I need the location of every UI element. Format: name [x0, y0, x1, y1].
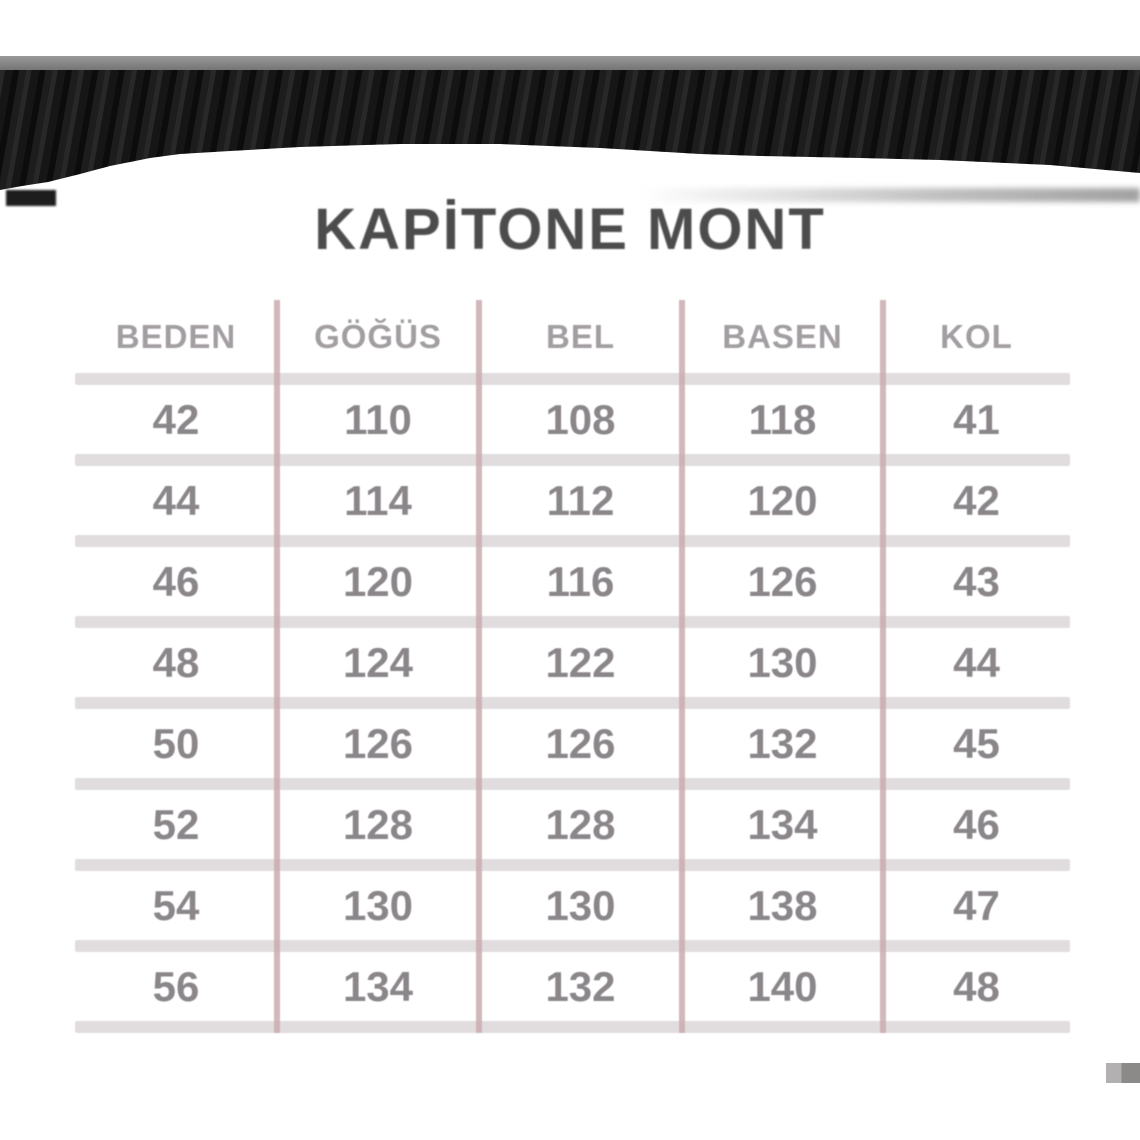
table-row: 44 114 112 120 42 [75, 466, 1070, 535]
row-divider [75, 859, 1070, 871]
cell-gogus: 134 [277, 963, 479, 1011]
cell-kol: 44 [883, 639, 1070, 687]
cell-bel: 116 [479, 558, 682, 606]
row-divider [75, 1021, 1070, 1033]
column-divider [880, 300, 886, 1033]
column-divider [476, 300, 482, 1033]
size-chart-page: KAPİTONE MONT BEDEN GÖĞÜS BEL BASEN KOL … [0, 0, 1140, 1140]
cell-beden: 42 [75, 396, 277, 444]
table-row: 42 110 108 118 41 [75, 385, 1070, 454]
cell-beden: 44 [75, 477, 277, 525]
cell-kol: 47 [883, 882, 1070, 930]
cell-beden: 54 [75, 882, 277, 930]
row-divider [75, 373, 1070, 385]
table-row: 46 120 116 126 43 [75, 547, 1070, 616]
cell-bel: 130 [479, 882, 682, 930]
column-header-kol: KOL [883, 318, 1070, 356]
page-title: KAPİTONE MONT [0, 196, 1140, 263]
banner-top-line [0, 56, 1140, 72]
column-divider [274, 300, 280, 1033]
column-header-beden: BEDEN [75, 318, 277, 356]
table-header-row: BEDEN GÖĞÜS BEL BASEN KOL [75, 300, 1070, 373]
cell-gogus: 124 [277, 639, 479, 687]
size-table: BEDEN GÖĞÜS BEL BASEN KOL 42 110 108 118… [75, 300, 1070, 1033]
table-row: 48 124 122 130 44 [75, 628, 1070, 697]
cell-kol: 45 [883, 720, 1070, 768]
row-divider [75, 697, 1070, 709]
row-divider [75, 778, 1070, 790]
row-divider [75, 535, 1070, 547]
cell-bel: 108 [479, 396, 682, 444]
column-header-basen: BASEN [682, 318, 883, 356]
cell-beden: 52 [75, 801, 277, 849]
cell-basen: 118 [682, 396, 883, 444]
cell-bel: 126 [479, 720, 682, 768]
cell-basen: 140 [682, 963, 883, 1011]
cell-gogus: 128 [277, 801, 479, 849]
cell-bel: 112 [479, 477, 682, 525]
fabric-banner [0, 70, 1140, 195]
cell-kol: 42 [883, 477, 1070, 525]
cell-basen: 134 [682, 801, 883, 849]
page-corner-mark [1106, 1063, 1140, 1083]
cell-beden: 48 [75, 639, 277, 687]
row-divider [75, 616, 1070, 628]
cell-bel: 128 [479, 801, 682, 849]
cell-gogus: 126 [277, 720, 479, 768]
cell-bel: 122 [479, 639, 682, 687]
cell-kol: 41 [883, 396, 1070, 444]
cell-basen: 120 [682, 477, 883, 525]
column-header-bel: BEL [479, 318, 682, 356]
cell-gogus: 114 [277, 477, 479, 525]
cell-beden: 50 [75, 720, 277, 768]
table-row: 52 128 128 134 46 [75, 790, 1070, 859]
table-row: 50 126 126 132 45 [75, 709, 1070, 778]
cell-beden: 56 [75, 963, 277, 1011]
cell-gogus: 130 [277, 882, 479, 930]
cell-basen: 132 [682, 720, 883, 768]
cell-basen: 130 [682, 639, 883, 687]
cell-kol: 46 [883, 801, 1070, 849]
table-row: 56 134 132 140 48 [75, 952, 1070, 1021]
cell-beden: 46 [75, 558, 277, 606]
cell-bel: 132 [479, 963, 682, 1011]
cell-basen: 126 [682, 558, 883, 606]
row-divider [75, 454, 1070, 466]
row-divider [75, 940, 1070, 952]
column-divider [679, 300, 685, 1033]
cell-gogus: 110 [277, 396, 479, 444]
cell-kol: 48 [883, 963, 1070, 1011]
column-header-gogus: GÖĞÜS [277, 318, 479, 356]
cell-basen: 138 [682, 882, 883, 930]
table-row: 54 130 130 138 47 [75, 871, 1070, 940]
cell-gogus: 120 [277, 558, 479, 606]
cell-kol: 43 [883, 558, 1070, 606]
